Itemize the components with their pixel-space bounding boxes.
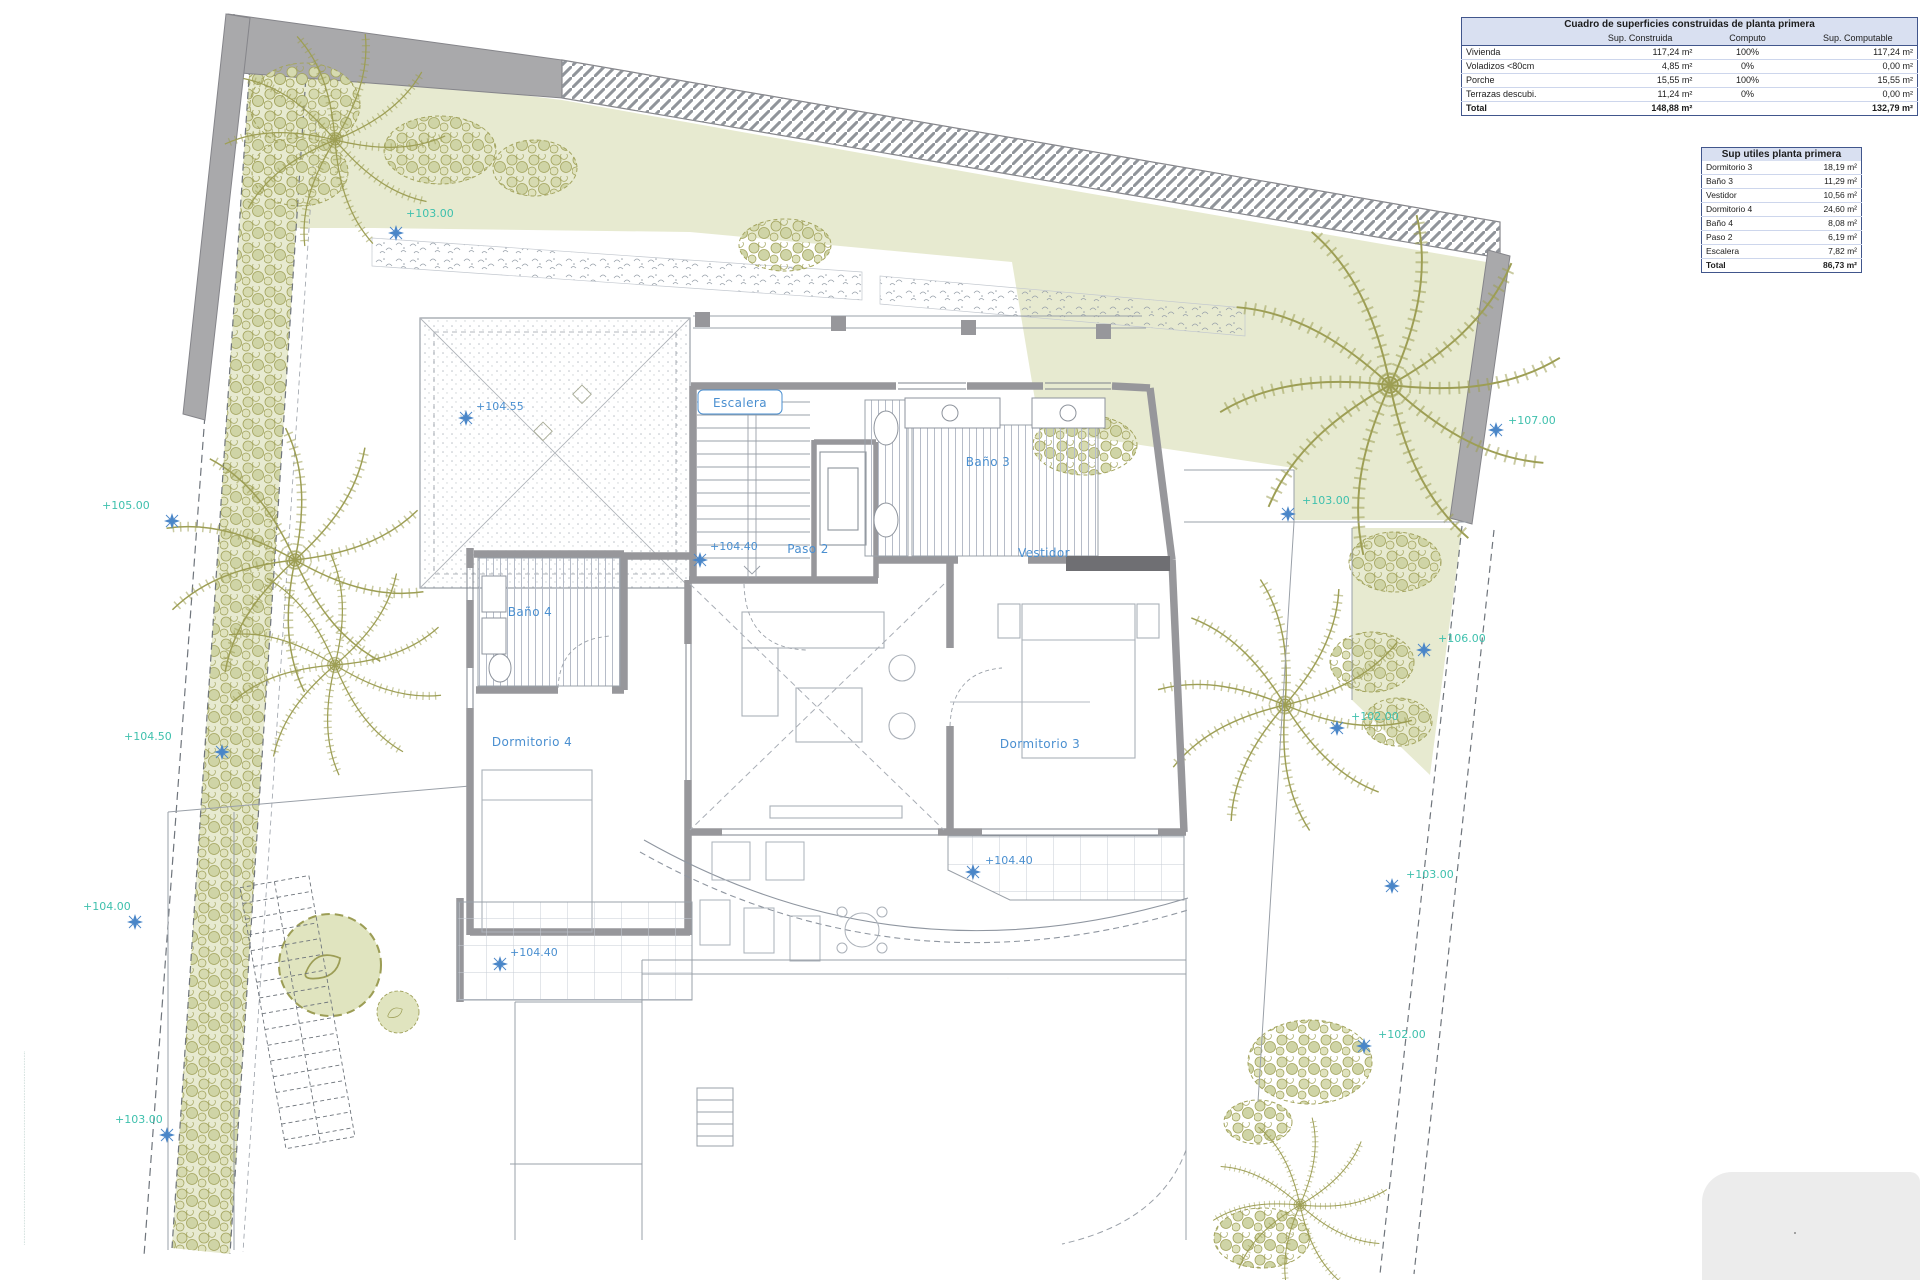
room-label-paso2: Paso 2	[787, 542, 829, 556]
svg-text:+103.00: +103.00	[406, 207, 454, 220]
table-row: Porche 15,55 m² 100% 15,55 m²	[1462, 74, 1918, 88]
svg-text:+104.40: +104.40	[510, 946, 558, 959]
table-row: Baño 3 11,29 m²	[1702, 175, 1862, 189]
svg-text:+104.40: +104.40	[710, 540, 758, 553]
roof-terrace	[420, 318, 690, 588]
table-title-row: Sup utiles planta primera	[1702, 148, 1862, 162]
svg-text:+102.00: +102.00	[1378, 1028, 1426, 1041]
table-row: Baño 4 8,08 m²	[1702, 217, 1862, 231]
bathroom3	[865, 398, 1105, 556]
bathroom4	[478, 558, 620, 688]
table-total-row: Total 148,88 m² 132,79 m²	[1462, 102, 1918, 116]
terraces	[458, 836, 1188, 1000]
level-marker: +103.00	[115, 1113, 175, 1143]
table-row: Dormitorio 3 18,19 m²	[1702, 161, 1862, 175]
corner-mask	[1702, 1172, 1920, 1280]
useful-areas-table: Sup utiles planta primera Dormitorio 3 1…	[1701, 147, 1862, 273]
table-row: Dormitorio 4 24,60 m²	[1702, 203, 1862, 217]
table-title: Cuadro de superficies construidas de pla…	[1462, 18, 1918, 32]
level-marker: +103.00	[1384, 868, 1454, 894]
edge-microtext: ········································…	[22, 1051, 28, 1245]
level-marker: +107.00	[1488, 414, 1556, 438]
svg-text:+103.00: +103.00	[115, 1113, 163, 1126]
outdoor-furniture	[700, 842, 887, 961]
table-row: Vestidor 10,56 m²	[1702, 189, 1862, 203]
table-row: Terrazas descubi. 11,24 m² 0% 0,00 m²	[1462, 88, 1918, 102]
site-plan-drawing: Escalera Baño 3 Vestidor Paso 2 Baño 4 D…	[0, 0, 1920, 1280]
corner-dot	[1794, 1232, 1796, 1234]
svg-text:+104.40: +104.40	[985, 854, 1033, 867]
svg-text:+102.00: +102.00	[1351, 710, 1399, 723]
table-total-row: Total 86,73 m²	[1702, 259, 1862, 273]
column-header-row: Sup. Construida Computo Sup. Computable	[1462, 31, 1918, 46]
elevator	[820, 452, 866, 545]
bedroom3	[998, 604, 1159, 758]
table-title: Sup utiles planta primera	[1702, 148, 1862, 162]
vestidor-room	[950, 556, 1170, 726]
svg-text:+106.00: +106.00	[1438, 632, 1486, 645]
living-void	[690, 584, 944, 830]
level-marker: +104.00	[83, 900, 143, 930]
svg-text:+105.00: +105.00	[102, 499, 150, 512]
svg-text:+104.50: +104.50	[124, 730, 172, 743]
table-row: Voladizos <80cm 4,85 m² 0% 0,00 m²	[1462, 60, 1918, 74]
room-label-dormitorio3: Dormitorio 3	[1000, 737, 1080, 751]
svg-text:+104.00: +104.00	[83, 900, 131, 913]
room-label-bano4: Baño 4	[508, 605, 552, 619]
svg-text:+104.55: +104.55	[476, 400, 524, 413]
constructed-areas-table: Cuadro de superficies construidas de pla…	[1461, 17, 1918, 116]
table-row: Escalera 7,82 m²	[1702, 245, 1862, 259]
level-marker: +105.00	[102, 499, 180, 529]
room-label-dormitorio4: Dormitorio 4	[492, 735, 572, 749]
floor-plan-sheet: Escalera Baño 3 Vestidor Paso 2 Baño 4 D…	[0, 0, 1920, 1280]
room-label-vestidor: Vestidor	[1018, 546, 1070, 560]
room-label-bano3: Baño 3	[966, 455, 1010, 469]
table-row: Paso 2 6,19 m²	[1702, 231, 1862, 245]
svg-text:+103.00: +103.00	[1406, 868, 1454, 881]
room-label-escalera: Escalera	[713, 396, 767, 410]
svg-text:+103.00: +103.00	[1302, 494, 1350, 507]
table-title-row: Cuadro de superficies construidas de pla…	[1462, 18, 1918, 32]
svg-text:+107.00: +107.00	[1508, 414, 1556, 427]
table-row: Vivienda 117,24 m² 100% 117,24 m²	[1462, 46, 1918, 60]
